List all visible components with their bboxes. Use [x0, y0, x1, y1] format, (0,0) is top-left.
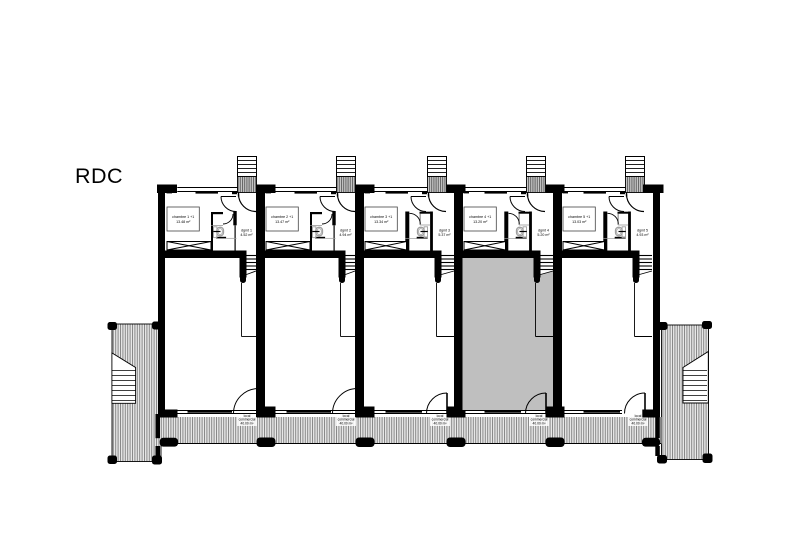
svg-text:40.00 m²: 40.00 m² — [240, 421, 254, 425]
svg-text:dgmt 3: dgmt 3 — [439, 228, 450, 232]
svg-text:dgmt 1: dgmt 1 — [241, 228, 252, 232]
svg-text:5.37 m²: 5.37 m² — [438, 233, 451, 237]
svg-text:chambre 5 +1: chambre 5 +1 — [568, 215, 590, 219]
svg-text:dgmt 4: dgmt 4 — [538, 228, 549, 232]
svg-text:13.34 m²: 13.34 m² — [374, 220, 389, 224]
svg-text:4.93 m²: 4.93 m² — [636, 233, 649, 237]
svg-text:4.52 m²: 4.52 m² — [240, 233, 253, 237]
svg-text:chambre 1 +1: chambre 1 +1 — [172, 215, 194, 219]
svg-text:chambre 3 +1: chambre 3 +1 — [370, 215, 392, 219]
svg-text:13.03 m²: 13.03 m² — [572, 220, 587, 224]
svg-text:dgmt 2: dgmt 2 — [340, 228, 351, 232]
svg-text:13.48 m²: 13.48 m² — [176, 220, 191, 224]
svg-text:5.20 m²: 5.20 m² — [537, 233, 550, 237]
svg-text:40.00 m²: 40.00 m² — [631, 421, 645, 425]
svg-text:40.00 m²: 40.00 m² — [339, 421, 353, 425]
svg-text:40.00 m²: 40.00 m² — [433, 421, 447, 425]
svg-text:4.94 m²: 4.94 m² — [339, 233, 352, 237]
svg-text:13.47 m²: 13.47 m² — [275, 220, 290, 224]
svg-text:dgmt 5: dgmt 5 — [637, 228, 648, 232]
svg-text:chambre 4 +1: chambre 4 +1 — [469, 215, 491, 219]
svg-text:RDC: RDC — [75, 164, 123, 188]
svg-text:40.00 m²: 40.00 m² — [532, 421, 546, 425]
svg-text:13.20 m²: 13.20 m² — [473, 220, 488, 224]
svg-text:chambre 2 +1: chambre 2 +1 — [271, 215, 293, 219]
